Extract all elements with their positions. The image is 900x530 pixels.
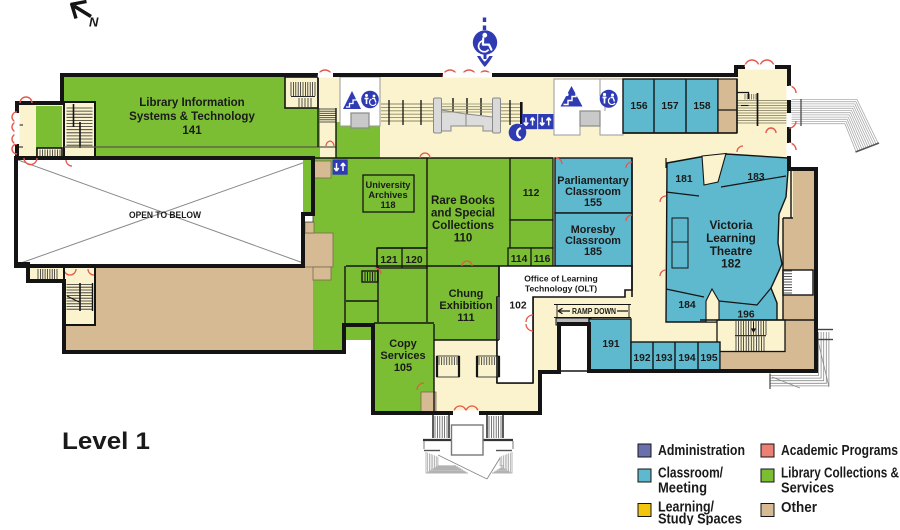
svg-text:Archives: Archives — [368, 190, 407, 200]
svg-text:194: 194 — [678, 353, 695, 364]
svg-text:Administration: Administration — [658, 443, 745, 459]
svg-text:Library Information: Library Information — [139, 97, 244, 109]
svg-text:RAMP DOWN: RAMP DOWN — [572, 307, 616, 316]
svg-text:University: University — [366, 180, 412, 190]
svg-text:196: 196 — [737, 310, 754, 321]
svg-text:Technology (OLT): Technology (OLT) — [525, 284, 597, 294]
svg-text:N: N — [89, 15, 99, 30]
svg-text:Meeting: Meeting — [658, 481, 707, 497]
svg-text:141: 141 — [182, 125, 202, 137]
svg-text:Office of Learning: Office of Learning — [524, 274, 598, 284]
svg-text:184: 184 — [678, 300, 695, 311]
svg-text:Study Spaces: Study Spaces — [658, 512, 742, 526]
svg-text:121: 121 — [380, 255, 397, 266]
svg-text:OPEN TO BELOW: OPEN TO BELOW — [129, 210, 201, 220]
svg-text:120: 120 — [405, 255, 422, 266]
svg-text:Rare Books: Rare Books — [431, 195, 495, 207]
svg-text:116: 116 — [534, 254, 551, 265]
svg-text:181: 181 — [675, 174, 692, 185]
svg-text:105: 105 — [394, 362, 412, 374]
svg-text:155: 155 — [584, 197, 602, 209]
svg-text:Library Collections &: Library Collections & — [781, 466, 899, 482]
svg-text:Services: Services — [781, 481, 834, 497]
svg-text:Classroom/: Classroom/ — [658, 466, 723, 482]
svg-text:185: 185 — [584, 246, 602, 258]
svg-text:118: 118 — [381, 200, 396, 210]
svg-text:Learning: Learning — [706, 231, 756, 245]
svg-text:156: 156 — [630, 101, 647, 112]
svg-text:157: 157 — [661, 101, 678, 112]
svg-text:Victoria: Victoria — [709, 218, 752, 232]
svg-text:Systems & Technology: Systems & Technology — [129, 111, 255, 123]
svg-text:Chung: Chung — [449, 288, 484, 300]
svg-text:Other: Other — [781, 500, 817, 516]
svg-text:193: 193 — [655, 353, 672, 364]
svg-text:Exhibition: Exhibition — [439, 300, 492, 312]
svg-text:111: 111 — [457, 312, 474, 324]
svg-text:Level 1: Level 1 — [62, 428, 150, 455]
svg-text:and Special: and Special — [431, 208, 495, 220]
svg-text:Collections: Collections — [432, 220, 494, 232]
svg-text:158: 158 — [693, 101, 710, 112]
svg-text:192: 192 — [633, 353, 650, 364]
svg-text:Academic Programs: Academic Programs — [781, 443, 898, 459]
svg-text:195: 195 — [700, 353, 717, 364]
svg-text:112: 112 — [523, 188, 540, 199]
svg-text:114: 114 — [511, 254, 528, 265]
svg-text:183: 183 — [747, 172, 764, 183]
svg-text:102: 102 — [509, 301, 526, 312]
svg-text:Copy: Copy — [389, 338, 417, 350]
svg-text:Services: Services — [380, 350, 425, 362]
svg-text:110: 110 — [454, 233, 473, 245]
svg-text:191: 191 — [602, 339, 619, 350]
svg-text:182: 182 — [721, 257, 741, 271]
